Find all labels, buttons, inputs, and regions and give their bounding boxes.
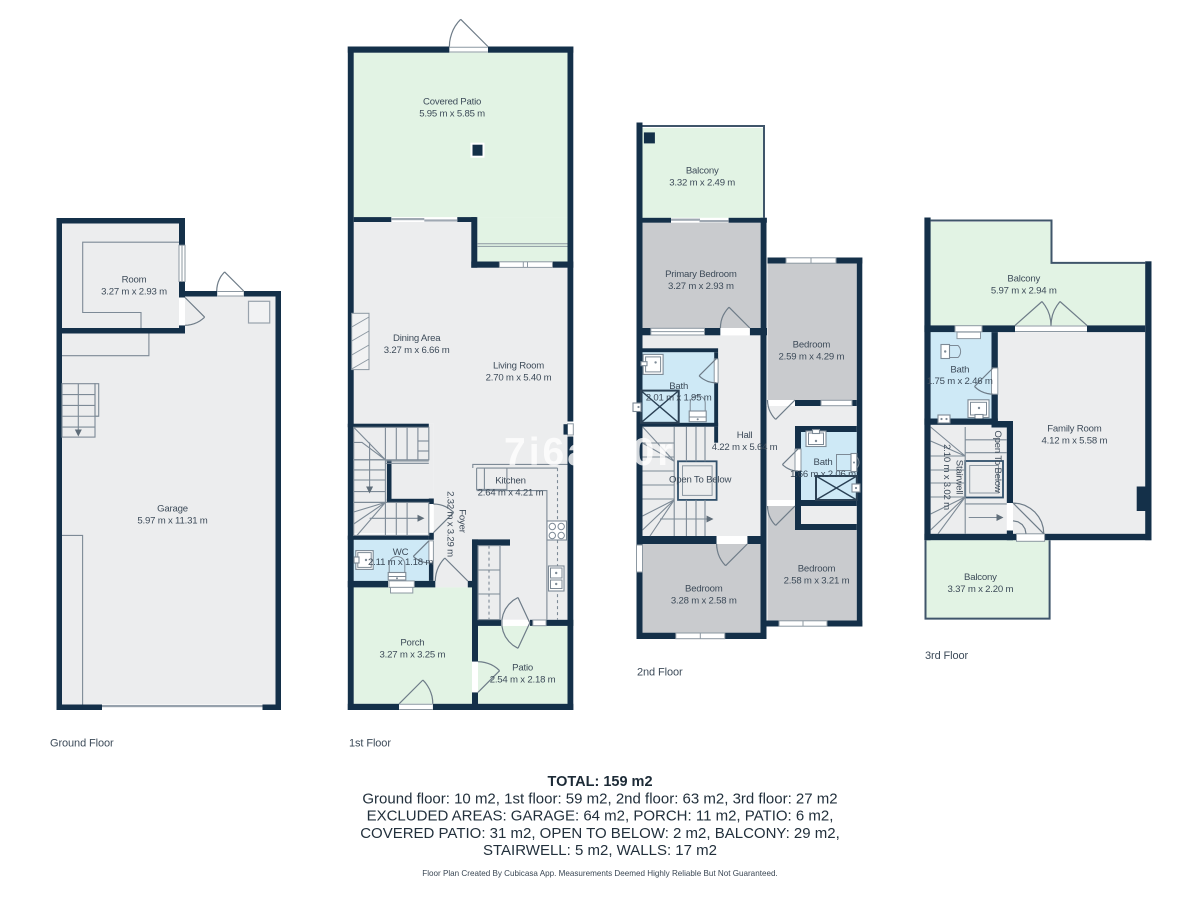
svg-text:4.12 m x 5.58 m: 4.12 m x 5.58 m [1042, 436, 1108, 447]
svg-text:Living Room: Living Room [493, 361, 544, 372]
svg-text:Covered Patio: Covered Patio [423, 97, 481, 108]
svg-text:Ground floor: 10 m2, 1st floor: Ground floor: 10 m2, 1st floor: 59 m2, 2… [362, 791, 837, 808]
svg-text:3.37 m x 2.20 m: 3.37 m x 2.20 m [948, 584, 1014, 595]
svg-text:2.64 m x 4.21 m: 2.64 m x 4.21 m [478, 488, 544, 499]
svg-text:3.32 m x 2.49 m: 3.32 m x 2.49 m [669, 178, 735, 189]
svg-text:Kitchen: Kitchen [495, 476, 526, 487]
svg-text:Open To Below: Open To Below [669, 475, 732, 486]
svg-text:2.59 m x 4.29 m: 2.59 m x 4.29 m [779, 352, 845, 363]
svg-text:EXCLUDED AREAS: GARAGE: 64 m2,: EXCLUDED AREAS: GARAGE: 64 m2, PORCH: 11… [367, 808, 834, 825]
svg-text:STAIRWELL: 5 m2, WALLS: 17 m2: STAIRWELL: 5 m2, WALLS: 17 m2 [483, 842, 717, 859]
svg-text:3.27 m x 6.66 m: 3.27 m x 6.66 m [384, 345, 450, 356]
svg-text:5.97 m x 2.94 m: 5.97 m x 2.94 m [991, 286, 1057, 297]
svg-text:Foyer: Foyer [457, 509, 468, 534]
svg-text:2.01 m x 1.95 m: 2.01 m x 1.95 m [646, 393, 712, 404]
svg-text:1.66 m x 2.06 m: 1.66 m x 2.06 m [790, 469, 856, 480]
svg-text:3.27 m x 2.93 m: 3.27 m x 2.93 m [101, 287, 167, 298]
svg-text:Bedroom: Bedroom [685, 583, 723, 594]
svg-text:2.70 m x 5.40 m: 2.70 m x 5.40 m [486, 373, 552, 384]
svg-text:3rd Floor: 3rd Floor [925, 650, 969, 662]
svg-text:2nd Floor: 2nd Floor [637, 667, 683, 679]
svg-text:1st Floor: 1st Floor [349, 738, 391, 750]
svg-text:Bath: Bath [669, 381, 688, 392]
svg-text:1.75 m x 2.46 m: 1.75 m x 2.46 m [927, 376, 993, 387]
svg-text:2.58 m x 3.21 m: 2.58 m x 3.21 m [784, 576, 850, 587]
svg-text:Bath: Bath [814, 457, 833, 468]
svg-text:Ground Floor: Ground Floor [50, 738, 114, 750]
svg-text:Stairwell: Stairwell [954, 460, 965, 495]
svg-text:2.11 m x 1.18 m: 2.11 m x 1.18 m [368, 557, 433, 568]
svg-text:Primary Bedroom: Primary Bedroom [665, 269, 737, 280]
svg-text:Family Room: Family Room [1047, 424, 1102, 435]
svg-text:Floor Plan Created By Cubicasa: Floor Plan Created By Cubicasa App. Meas… [422, 869, 777, 878]
svg-text:Room: Room [122, 275, 147, 286]
svg-text:Bedroom: Bedroom [793, 340, 831, 351]
svg-text:Bedroom: Bedroom [798, 564, 836, 575]
svg-text:Balcony: Balcony [686, 166, 719, 177]
svg-text:2.32 m x 3.29 m: 2.32 m x 3.29 m [445, 491, 456, 557]
svg-text:Bath: Bath [950, 365, 969, 376]
svg-text:3.27 m x 3.25 m: 3.27 m x 3.25 m [380, 650, 446, 661]
svg-text:Dining Area: Dining Area [393, 333, 441, 344]
svg-text:Porch: Porch [400, 638, 424, 649]
svg-text:Garage: Garage [157, 504, 188, 515]
svg-text:5.95 m x 5.85 m: 5.95 m x 5.85 m [419, 109, 485, 120]
svg-text:Open To Below: Open To Below [992, 430, 1003, 493]
svg-text:Balcony: Balcony [1007, 274, 1040, 285]
svg-text:Balcony: Balcony [964, 572, 997, 583]
svg-text:7i6af30r: 7i6af30r [504, 431, 675, 474]
svg-text:Patio: Patio [512, 663, 533, 674]
svg-text:4.22 m x 5.64 m: 4.22 m x 5.64 m [712, 442, 778, 453]
svg-text:3.27 m x 2.93 m: 3.27 m x 2.93 m [668, 281, 734, 292]
svg-text:Hall: Hall [737, 430, 753, 441]
svg-text:TOTAL: 159 m2: TOTAL: 159 m2 [547, 774, 652, 790]
svg-text:COVERED PATIO: 31 m2, OPEN TO: COVERED PATIO: 31 m2, OPEN TO BELOW: 2 m… [360, 825, 840, 842]
svg-text:2.54 m x 2.18 m: 2.54 m x 2.18 m [490, 675, 556, 686]
svg-text:3.28 m x 2.58 m: 3.28 m x 2.58 m [671, 595, 737, 606]
svg-text:2.10 m x 3.02 m: 2.10 m x 3.02 m [941, 444, 952, 510]
svg-text:5.97 m x 11.31 m: 5.97 m x 11.31 m [137, 516, 207, 527]
